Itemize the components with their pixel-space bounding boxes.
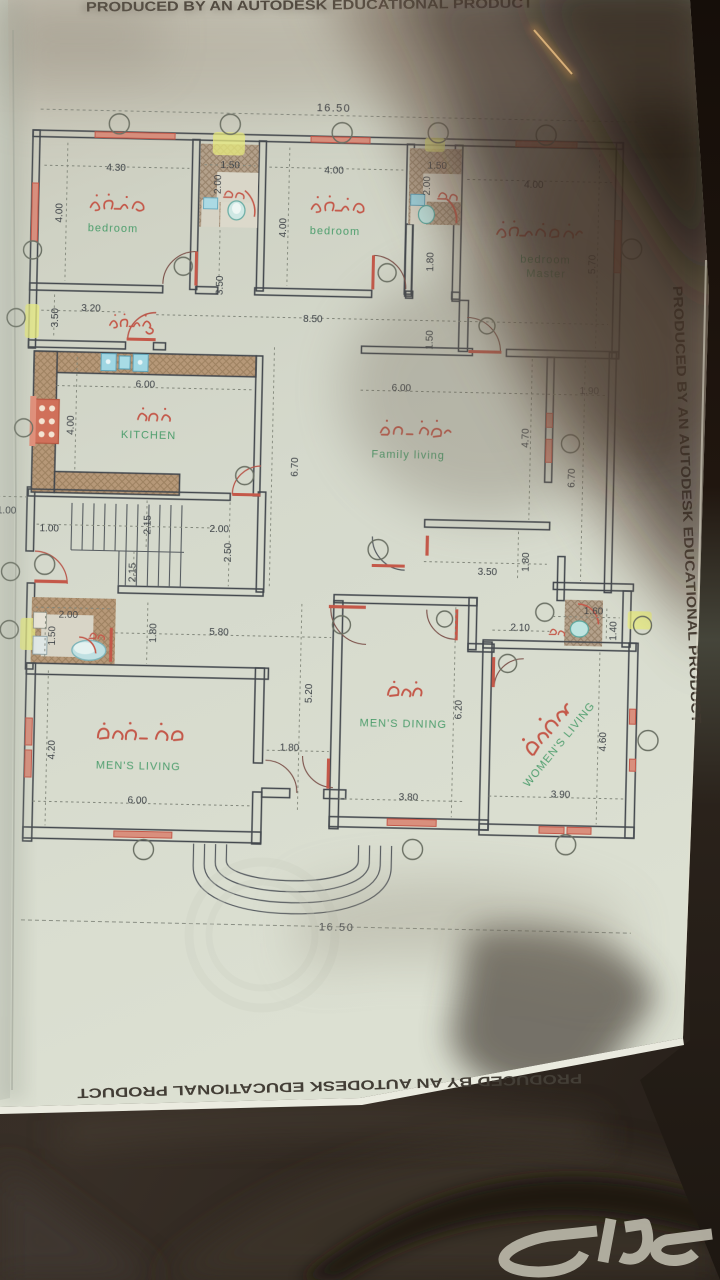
svg-text:2.00: 2.00 (209, 524, 229, 535)
svg-text:1.50: 1.50 (220, 160, 240, 171)
svg-text:MEN'S DINING: MEN'S DINING (359, 717, 447, 731)
svg-text:4.00: 4.00 (324, 165, 344, 176)
svg-text:4.30: 4.30 (106, 163, 126, 174)
svg-text:1.00: 1.00 (39, 523, 59, 534)
svg-text:1.50: 1.50 (47, 625, 58, 645)
svg-text:1.80: 1.80 (280, 742, 300, 753)
svg-text:2.10: 2.10 (510, 622, 530, 633)
svg-text:3.50: 3.50 (215, 275, 226, 295)
svg-text:1.80: 1.80 (148, 623, 159, 643)
svg-text:6.20: 6.20 (453, 699, 464, 719)
svg-text:1.80: 1.80 (425, 252, 436, 272)
svg-text:4.60: 4.60 (598, 732, 609, 752)
svg-text:bedroom: bedroom (310, 225, 361, 238)
svg-text:2.15: 2.15 (127, 562, 138, 582)
svg-text:6.00: 6.00 (136, 379, 156, 390)
svg-text:4.00: 4.00 (54, 203, 65, 223)
svg-text:KITCHEN: KITCHEN (121, 429, 177, 442)
svg-text:4.20: 4.20 (46, 740, 57, 760)
svg-text:3.50: 3.50 (50, 307, 61, 327)
svg-text:1.80: 1.80 (521, 552, 532, 572)
svg-text:2.00: 2.00 (58, 610, 78, 621)
svg-text:3.20: 3.20 (81, 303, 101, 314)
svg-text:6.00: 6.00 (127, 795, 147, 806)
svg-text:3.80: 3.80 (399, 792, 419, 803)
svg-text:8.50: 8.50 (303, 314, 323, 325)
svg-text:2.50: 2.50 (223, 542, 234, 562)
svg-text:6.70: 6.70 (290, 457, 301, 477)
svg-text:5.80: 5.80 (209, 627, 229, 638)
svg-text:1.40: 1.40 (608, 621, 619, 641)
svg-text:2.15: 2.15 (142, 515, 153, 535)
svg-text:5.20: 5.20 (304, 683, 315, 703)
svg-text:4.00: 4.00 (66, 415, 77, 435)
svg-text:2.00: 2.00 (213, 174, 224, 194)
svg-text:4.00: 4.00 (278, 217, 289, 237)
svg-text:bedroom: bedroom (88, 222, 139, 235)
svg-text:MEN'S LIVING: MEN'S LIVING (96, 759, 181, 773)
svg-text:3.90: 3.90 (551, 789, 571, 800)
svg-text:3.50: 3.50 (478, 567, 498, 578)
svg-text:1.60: 1.60 (584, 606, 604, 617)
